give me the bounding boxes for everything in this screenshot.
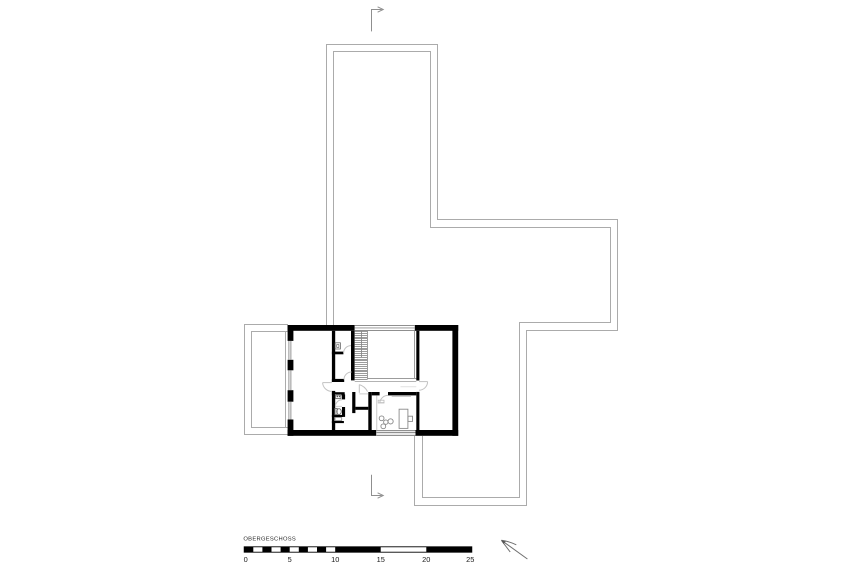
svg-text:20: 20 [422,555,430,564]
svg-text:OBERGESCHOSS: OBERGESCHOSS [243,537,296,543]
svg-text:5: 5 [288,555,292,564]
svg-text:10: 10 [331,555,339,564]
svg-text:0: 0 [244,555,248,564]
svg-text:15: 15 [377,555,385,564]
svg-text:25: 25 [466,555,474,564]
